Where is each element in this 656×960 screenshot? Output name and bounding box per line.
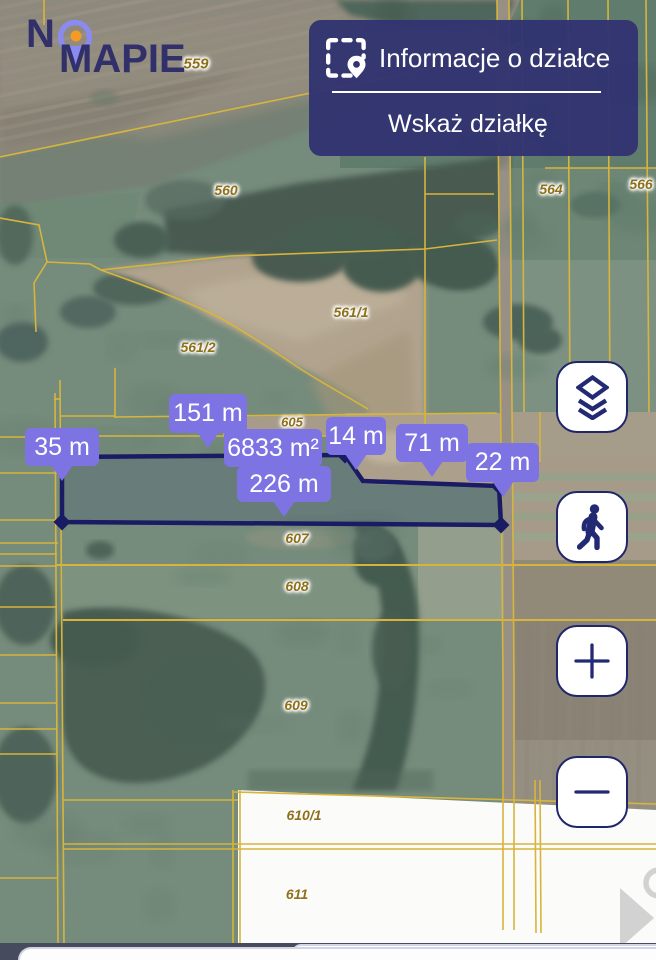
svg-text:MAPIE: MAPIE [59, 37, 186, 81]
svg-text:N: N [26, 12, 55, 56]
